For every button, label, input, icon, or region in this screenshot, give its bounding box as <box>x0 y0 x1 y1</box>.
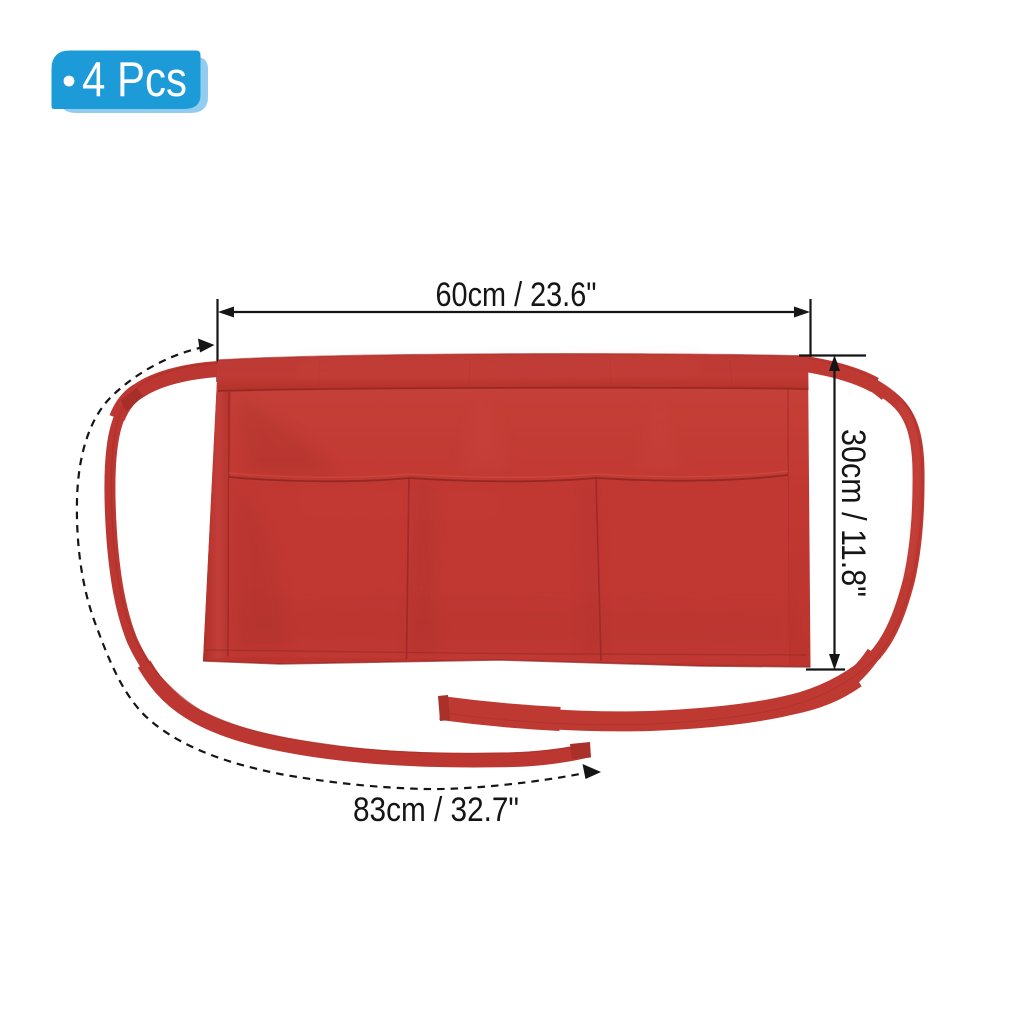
svg-text:60cm / 23.6": 60cm / 23.6" <box>436 276 597 314</box>
svg-text:83cm / 32.7": 83cm / 32.7" <box>353 791 519 829</box>
svg-text:4 Pcs: 4 Pcs <box>82 53 187 107</box>
svg-text:30cm / 11.8": 30cm / 11.8" <box>834 429 872 597</box>
